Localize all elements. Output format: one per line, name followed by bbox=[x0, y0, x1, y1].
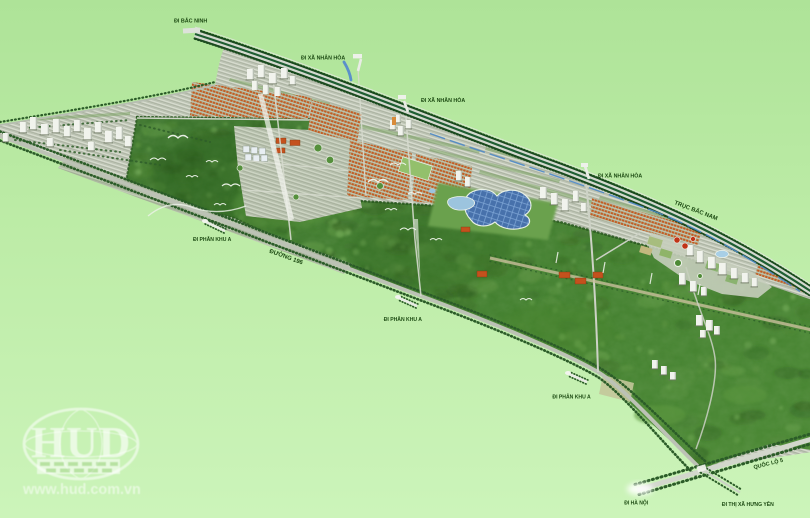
svg-text:ĐI PHÂN KHU A: ĐI PHÂN KHU A bbox=[193, 236, 232, 243]
svg-text:ĐI PHÂN KHU A: ĐI PHÂN KHU A bbox=[552, 393, 591, 400]
svg-text:ĐI XÃ NHÂN HÒA: ĐI XÃ NHÂN HÒA bbox=[598, 172, 642, 180]
svg-text:ĐI HÀ NỘI: ĐI HÀ NỘI bbox=[624, 499, 649, 507]
svg-text:ĐI XÃ NHÂN HÒA: ĐI XÃ NHÂN HÒA bbox=[421, 96, 465, 104]
svg-text:ĐI PHÂN KHU A: ĐI PHÂN KHU A bbox=[384, 316, 423, 323]
svg-text:www.hud.com.vn: www.hud.com.vn bbox=[22, 482, 141, 498]
svg-text:ĐI BẮC NINH: ĐI BẮC NINH bbox=[174, 17, 207, 25]
svg-text:ĐI THỊ XÃ HƯNG YÊN: ĐI THỊ XÃ HƯNG YÊN bbox=[722, 500, 774, 508]
svg-text:ĐI XÃ NHÂN HÒA: ĐI XÃ NHÂN HÒA bbox=[301, 53, 345, 61]
